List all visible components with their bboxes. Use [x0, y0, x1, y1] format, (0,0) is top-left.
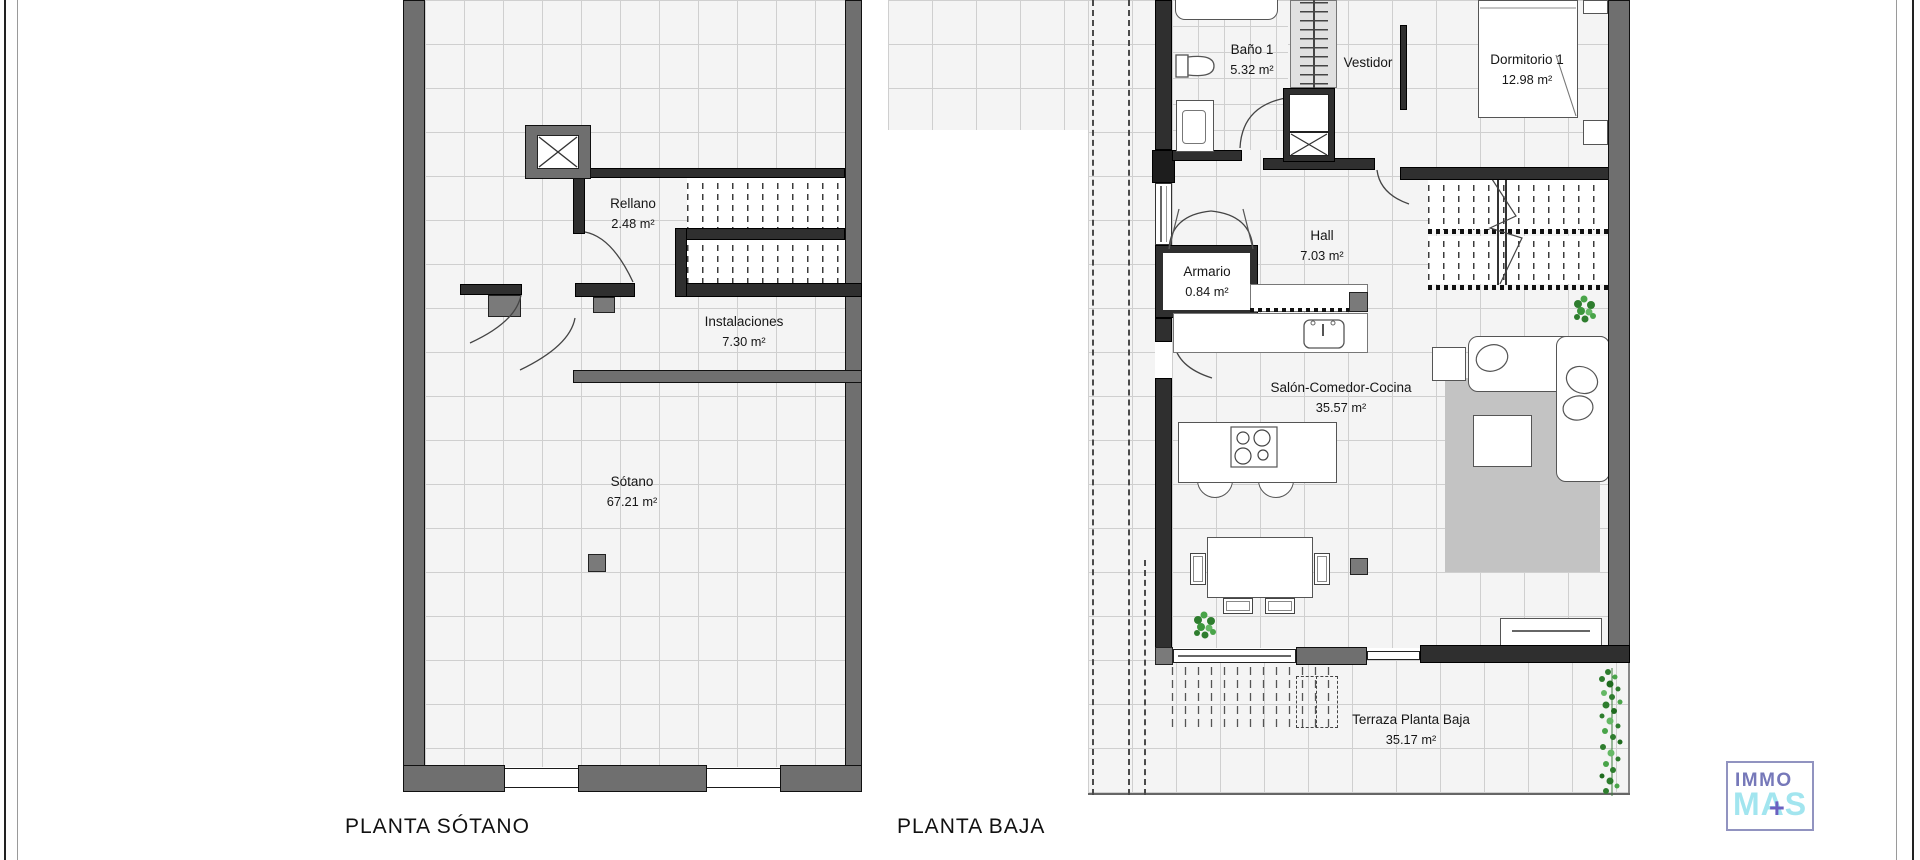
kitchen-sink [1303, 316, 1349, 350]
basement-pillar [588, 554, 606, 572]
gf-stairs-break-line [1478, 172, 1542, 290]
kitchen-pillar [1349, 292, 1368, 312]
basement-right-wall [845, 0, 862, 792]
room-label-rellano: Rellano 2.48 m² [573, 194, 693, 233]
basement-window-1 [505, 768, 578, 788]
basement-wall-stairs-cap [675, 228, 687, 297]
basement-bottom-wall-seg3 [780, 765, 862, 792]
hedge-icon [1590, 668, 1630, 796]
room-label-instalaciones: Instalaciones 7.30 m² [674, 312, 814, 351]
gf-left-wall-a [1155, 0, 1172, 150]
livingroom-pillar [1350, 558, 1368, 575]
room-area: 0.84 m² [1160, 282, 1254, 301]
room-label-vestidor: Vestidor [1330, 53, 1406, 73]
room-name: Instalaciones [674, 312, 814, 332]
gf-stairs-top-wall [1400, 167, 1630, 180]
room-area: 12.98 m² [1468, 70, 1586, 89]
room-name: Vestidor [1330, 53, 1406, 73]
boundary-dashed-line-3 [1144, 560, 1146, 795]
room-area: 5.32 m² [1210, 60, 1294, 79]
basement-bottom-wall-seg1 [403, 765, 505, 792]
basement-wall-stairs-top [570, 168, 845, 178]
room-area: 7.30 m² [674, 332, 814, 351]
logo-immomas: IMMO MAS + [1726, 761, 1814, 831]
room-label-dormitorio1: Dormitorio 1 12.98 m² [1468, 50, 1586, 89]
gf-right-wall [1608, 0, 1630, 663]
basement-door-arc-sotano [520, 318, 575, 370]
room-name: Armario [1160, 262, 1254, 282]
room-name: Rellano [573, 194, 693, 214]
sheet-border-left-outer [4, 0, 6, 860]
basement-door-leaf-2 [593, 297, 615, 313]
coffee-table [1473, 415, 1532, 467]
gf-left-wall-b [1155, 318, 1172, 342]
basement-wall-stairs-mid [675, 228, 845, 240]
sheet-border-left-inner [17, 0, 18, 860]
pergola-lattice-divider [1316, 676, 1318, 728]
basement-door-arc-rellano [585, 232, 635, 282]
room-label-sotano: Sótano 67.21 m² [572, 472, 692, 511]
sheet-border-right-inner [1896, 0, 1897, 860]
dining-chair-bottom-1 [1223, 598, 1253, 614]
plan-title-sotano: PLANTA SÓTANO [345, 815, 530, 839]
floorplan-sheet: Rellano 2.48 m² Instalaciones 7.30 m² Só… [0, 0, 1920, 860]
room-label-hall: Hall 7.03 m² [1280, 226, 1364, 265]
room-label-armario: Armario 0.84 m² [1160, 262, 1254, 301]
terrace-edge-line [1088, 793, 1630, 795]
room-name: Salón-Comedor-Cocina [1238, 378, 1444, 398]
basement-window-2 [707, 768, 780, 788]
gf-hall-door-arc [1377, 170, 1411, 206]
room-name: Hall [1280, 226, 1364, 246]
gf-bottom-wall-gray [1296, 647, 1367, 665]
sheet-border-right-outer [1912, 0, 1914, 860]
wardrobe-rail-line [1313, 0, 1315, 88]
basement-bottom-wall-seg2 [578, 765, 707, 792]
basement-floor-grid [425, 0, 845, 767]
room-area: 35.57 m² [1238, 398, 1444, 417]
gf-bottom-window [1367, 651, 1420, 660]
armario-double-door-arcs [1167, 203, 1255, 249]
boundary-dashed-line-2 [1128, 0, 1130, 795]
dining-chair-bottom-2 [1265, 598, 1295, 614]
vanity-basin [1182, 110, 1206, 144]
room-area: 2.48 m² [573, 214, 693, 233]
elevator-x-icon [537, 135, 579, 169]
room-label-terraza: Terraza Planta Baja 35.17 m² [1328, 710, 1494, 749]
room-name: Baño 1 [1210, 40, 1294, 60]
room-label-bano1: Baño 1 5.32 m² [1210, 40, 1294, 79]
nightstand-bottom [1583, 120, 1608, 145]
gf-bottom-wall-dark [1420, 645, 1630, 663]
sliding-door-glass-line [1178, 655, 1291, 657]
tv-sideboard-line [1512, 630, 1590, 632]
nightstand-top [1583, 0, 1608, 14]
gf-left-wall-c [1155, 378, 1172, 648]
gf-bath-door-arc [1240, 98, 1288, 150]
basement-left-wall [403, 0, 425, 792]
logo-plus-icon: + [1769, 793, 1785, 824]
room-area: 35.17 m² [1328, 730, 1494, 749]
gf-window-glass-line-1 [1160, 186, 1162, 242]
dining-chair-right [1314, 553, 1330, 585]
gf-elevator-x-icon [1289, 133, 1329, 156]
room-name: Terraza Planta Baja [1328, 710, 1494, 730]
basement-wall-sotano-top [573, 370, 862, 383]
basement-stairs-lower-run [687, 240, 845, 283]
basement-door-arc-instalaciones [470, 295, 521, 345]
dining-table [1207, 537, 1313, 598]
room-area: 7.03 m² [1280, 246, 1364, 265]
plant-icon-stairs [1568, 292, 1602, 326]
tv-sideboard [1500, 618, 1602, 647]
side-table [1432, 347, 1466, 381]
room-area: 67.21 m² [572, 492, 692, 511]
room-name: Dormitorio 1 [1468, 50, 1586, 70]
basement-wall-instalaciones-top [675, 283, 862, 297]
boundary-dashed-line-1 [1092, 0, 1094, 795]
plant-icon-dining [1188, 608, 1222, 642]
plan-title-baja: PLANTA BAJA [897, 815, 1045, 839]
room-name: Sótano [572, 472, 692, 492]
basement-wall-piece-a [460, 284, 522, 295]
bathtub [1175, 0, 1278, 20]
basement-stairs-upper-run [687, 178, 845, 228]
dining-chair-left [1190, 553, 1206, 585]
cooktop [1230, 426, 1278, 468]
gf-bottom-post [1155, 647, 1173, 665]
room-label-salon: Salón-Comedor-Cocina 35.57 m² [1238, 378, 1444, 417]
basement-wall-piece-b [575, 283, 635, 297]
